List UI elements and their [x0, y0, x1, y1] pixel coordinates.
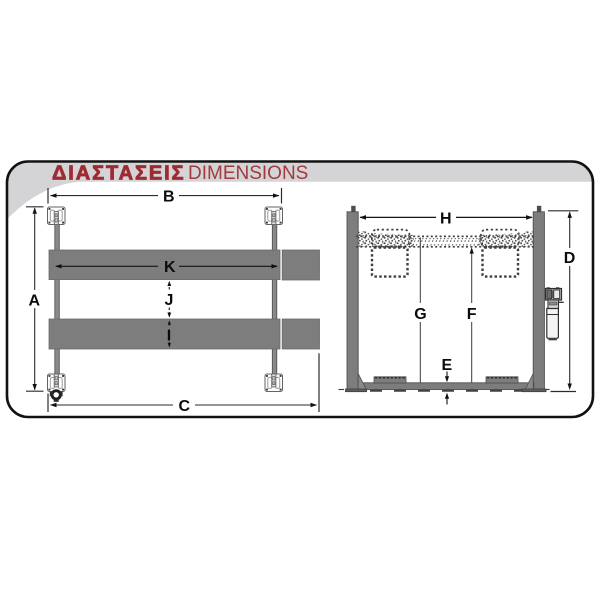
svg-text:E: E — [442, 357, 453, 374]
svg-text:D: D — [564, 250, 576, 267]
svg-text:F: F — [467, 306, 477, 323]
svg-text:H: H — [440, 211, 452, 228]
svg-text:G: G — [414, 306, 426, 323]
svg-text:I: I — [167, 327, 171, 344]
svg-text:A: A — [29, 293, 41, 310]
svg-text:ΔΙΑΣΤΑΣΕΙΣ: ΔΙΑΣΤΑΣΕΙΣ — [52, 163, 185, 185]
svg-text:DIMENSIONS: DIMENSIONS — [188, 163, 308, 184]
svg-text:J: J — [165, 292, 174, 309]
svg-text:K: K — [164, 259, 176, 276]
svg-text:B: B — [163, 189, 175, 206]
svg-text:C: C — [179, 398, 191, 415]
